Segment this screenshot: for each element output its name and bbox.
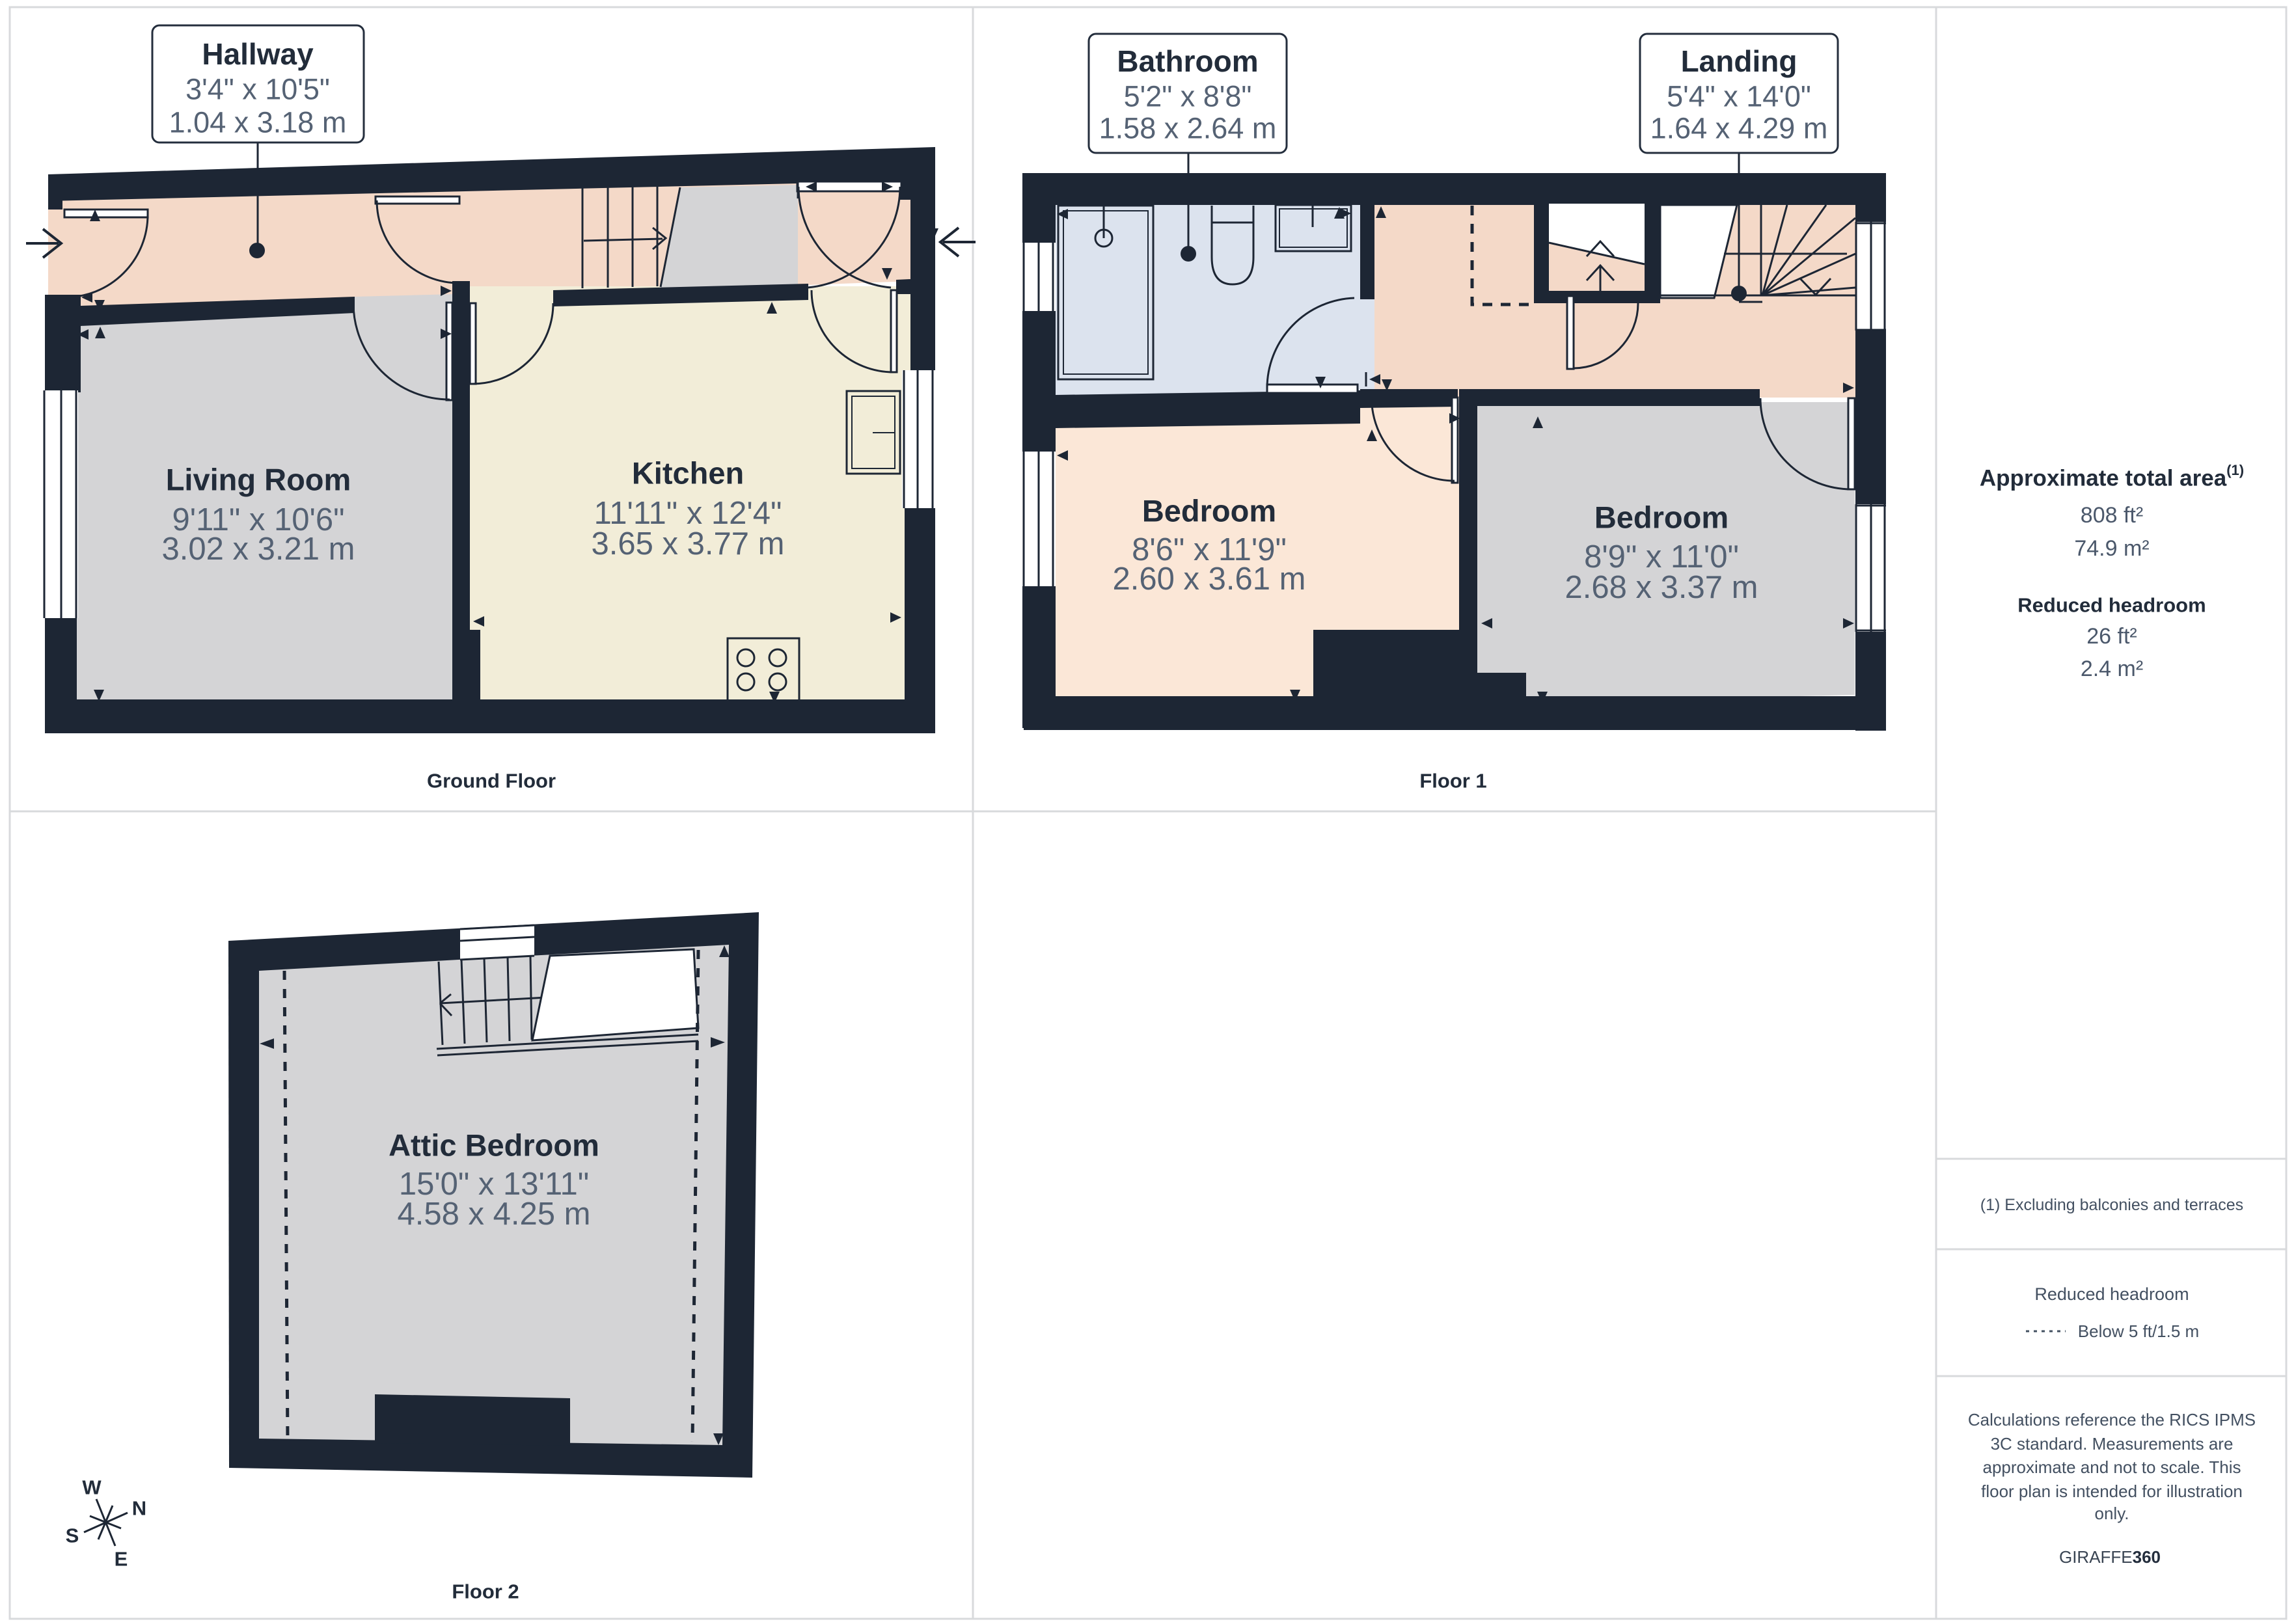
svg-text:Reduced headroom: Reduced headroom	[2017, 594, 2206, 617]
svg-text:1.04 x 3.18 m: 1.04 x 3.18 m	[169, 106, 347, 139]
svg-text:3'4" x 10'5": 3'4" x 10'5"	[185, 73, 330, 106]
svg-text:Bedroom: Bedroom	[1142, 494, 1276, 528]
svg-text:E: E	[115, 1548, 128, 1571]
svg-text:GIRAFFE360: GIRAFFE360	[2059, 1547, 2161, 1567]
svg-text:Ground Floor: Ground Floor	[427, 770, 556, 792]
svg-text:W: W	[82, 1476, 102, 1499]
svg-text:Approximate total area(1): Approximate total area(1)	[1980, 462, 2244, 491]
svg-text:Floor 1: Floor 1	[1419, 770, 1486, 792]
svg-text:N: N	[132, 1497, 146, 1520]
svg-text:Hallway: Hallway	[202, 37, 314, 71]
svg-text:4.58 x 4.25 m: 4.58 x 4.25 m	[398, 1197, 591, 1232]
svg-text:Reduced headroom: Reduced headroom	[2034, 1284, 2189, 1304]
svg-text:3.65 x 3.77 m: 3.65 x 3.77 m	[592, 526, 785, 562]
svg-text:Attic Bedroom: Attic Bedroom	[389, 1128, 599, 1163]
svg-text:Landing: Landing	[1681, 44, 1797, 78]
svg-text:approximate and not to scale.: approximate and not to scale. This	[1983, 1457, 2241, 1477]
svg-text:2.60 x 3.61 m: 2.60 x 3.61 m	[1113, 562, 1306, 597]
svg-text:Below 5 ft/1.5 m: Below 5 ft/1.5 m	[2078, 1321, 2199, 1341]
svg-text:Living Room: Living Room	[166, 463, 351, 497]
svg-text:Calculations reference the RIC: Calculations reference the RICS IPMS	[1968, 1410, 2256, 1429]
svg-text:3C standard. Measurements are: 3C standard. Measurements are	[1991, 1434, 2234, 1454]
svg-text:5'4" x 14'0": 5'4" x 14'0"	[1667, 80, 1811, 113]
svg-text:Bedroom: Bedroom	[1594, 500, 1729, 535]
svg-text:S: S	[66, 1524, 79, 1547]
svg-text:Bathroom: Bathroom	[1117, 44, 1258, 78]
svg-text:Floor 2: Floor 2	[452, 1580, 519, 1603]
svg-text:1.64 x 4.29 m: 1.64 x 4.29 m	[1650, 112, 1828, 145]
svg-text:808 ft²: 808 ft²	[2081, 503, 2143, 528]
svg-text:8'9" x 11'0": 8'9" x 11'0"	[1584, 539, 1739, 575]
svg-text:floor plan is intended for ill: floor plan is intended for illustration	[1981, 1482, 2243, 1501]
svg-text:only.: only.	[2095, 1504, 2129, 1523]
svg-text:Kitchen: Kitchen	[632, 456, 744, 491]
svg-text:74.9 m²: 74.9 m²	[2074, 536, 2149, 561]
svg-text:2.68 x 3.37 m: 2.68 x 3.37 m	[1565, 570, 1758, 605]
svg-text:26 ft²: 26 ft²	[2086, 624, 2137, 649]
svg-text:2.4 m²: 2.4 m²	[2081, 656, 2143, 681]
svg-text:1.58 x 2.64 m: 1.58 x 2.64 m	[1099, 112, 1277, 145]
svg-text:(1) Excluding balconies and te: (1) Excluding balconies and terraces	[1980, 1196, 2243, 1214]
svg-text:5'2" x 8'8": 5'2" x 8'8"	[1124, 80, 1252, 113]
svg-text:3.02 x 3.21 m: 3.02 x 3.21 m	[162, 532, 355, 567]
svg-text:11'11" x 12'4": 11'11" x 12'4"	[594, 496, 782, 531]
